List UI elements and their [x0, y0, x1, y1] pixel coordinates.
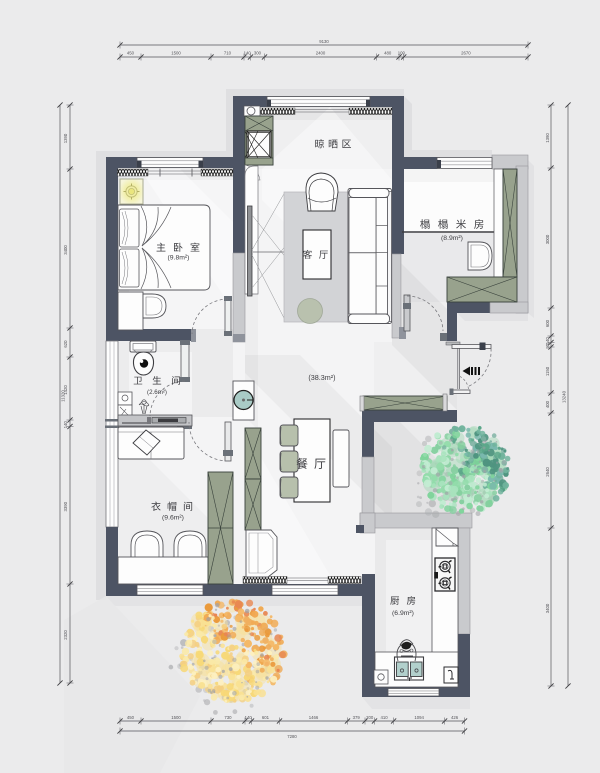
svg-text:426: 426: [451, 715, 459, 720]
svg-text:450: 450: [127, 715, 135, 720]
svg-text:300: 300: [254, 51, 262, 56]
svg-text:2400: 2400: [316, 51, 326, 56]
svg-text:11320: 11320: [61, 390, 66, 402]
svg-text:379: 379: [353, 715, 361, 720]
svg-text:(2.6m²): (2.6m²): [147, 389, 167, 396]
svg-text:(9.6m²): (9.6m²): [162, 515, 184, 522]
svg-text:3390: 3390: [63, 501, 68, 511]
svg-text:2670: 2670: [461, 51, 471, 56]
svg-text:1390: 1390: [545, 133, 550, 143]
svg-text:620: 620: [63, 340, 68, 348]
svg-text:7280: 7280: [287, 734, 297, 739]
svg-text:90: 90: [545, 343, 550, 348]
svg-text:1466: 1466: [309, 715, 319, 720]
svg-text:140: 140: [63, 421, 68, 429]
svg-text:140: 140: [545, 337, 550, 345]
svg-text:1390: 1390: [63, 133, 68, 143]
svg-text:1500: 1500: [171, 715, 181, 720]
svg-text:480: 480: [384, 51, 392, 56]
svg-text:200: 200: [366, 715, 374, 720]
svg-text:710: 710: [224, 51, 232, 56]
svg-text:(9.8m²): (9.8m²): [168, 255, 190, 262]
svg-text:3400: 3400: [63, 245, 68, 255]
svg-text:140: 140: [244, 51, 252, 56]
svg-text:100: 100: [398, 51, 406, 56]
svg-text:1500: 1500: [171, 51, 181, 56]
svg-text:730: 730: [224, 715, 232, 720]
svg-text:1150: 1150: [545, 366, 550, 376]
svg-text:(38.3m²): (38.3m²): [308, 373, 335, 382]
svg-text:13240: 13240: [562, 390, 567, 403]
svg-text:601: 601: [262, 715, 270, 720]
svg-text:3000: 3000: [545, 234, 550, 244]
svg-text:600: 600: [545, 319, 550, 327]
svg-text:2640: 2640: [545, 467, 550, 477]
svg-text:3400: 3400: [545, 603, 550, 613]
svg-text:(6.9m²): (6.9m²): [392, 610, 414, 617]
svg-text:(8.9m²): (8.9m²): [441, 235, 463, 242]
svg-text:1094: 1094: [414, 715, 424, 720]
svg-text:2320: 2320: [63, 630, 68, 640]
svg-text:400: 400: [545, 400, 550, 408]
svg-text:9130: 9130: [319, 39, 329, 44]
svg-text:140: 140: [245, 715, 253, 720]
svg-text:410: 410: [380, 715, 388, 720]
svg-text:450: 450: [127, 51, 135, 56]
